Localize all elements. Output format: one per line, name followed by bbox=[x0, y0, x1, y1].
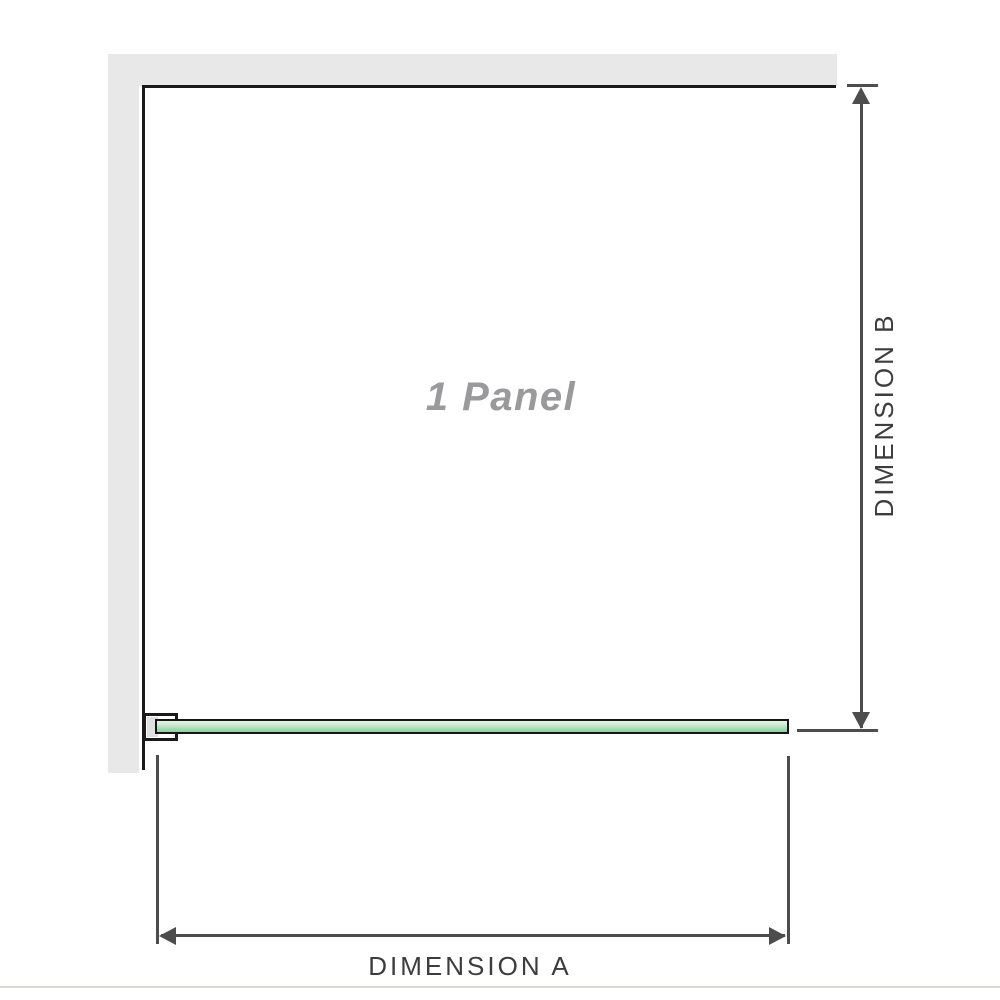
page-bottom-divider bbox=[0, 986, 1000, 988]
arrow-down-icon bbox=[852, 712, 870, 729]
panel-dimension-diagram: 1 Panel DIMENSION B DIMENSION A bbox=[0, 0, 1000, 1000]
dimension-a-extension-right bbox=[787, 756, 790, 944]
dimension-a-label: DIMENSION A bbox=[320, 950, 620, 982]
panel-label: 1 Panel bbox=[351, 372, 651, 422]
dimension-a-line bbox=[161, 934, 785, 937]
arrow-right-icon bbox=[769, 927, 786, 945]
arrow-up-icon bbox=[852, 87, 870, 104]
panel-top-edge bbox=[142, 85, 836, 88]
wall-left bbox=[108, 54, 139, 773]
panel-left-edge bbox=[142, 85, 145, 770]
dimension-b-tick-bottom bbox=[797, 729, 878, 732]
dimension-a-extension-left bbox=[156, 755, 159, 944]
wall-top bbox=[108, 54, 837, 86]
dimension-b-line bbox=[860, 91, 863, 728]
arrow-left-icon bbox=[159, 927, 176, 945]
dimension-b-label: DIMENSION B bbox=[868, 265, 900, 565]
glass-panel bbox=[155, 719, 789, 734]
